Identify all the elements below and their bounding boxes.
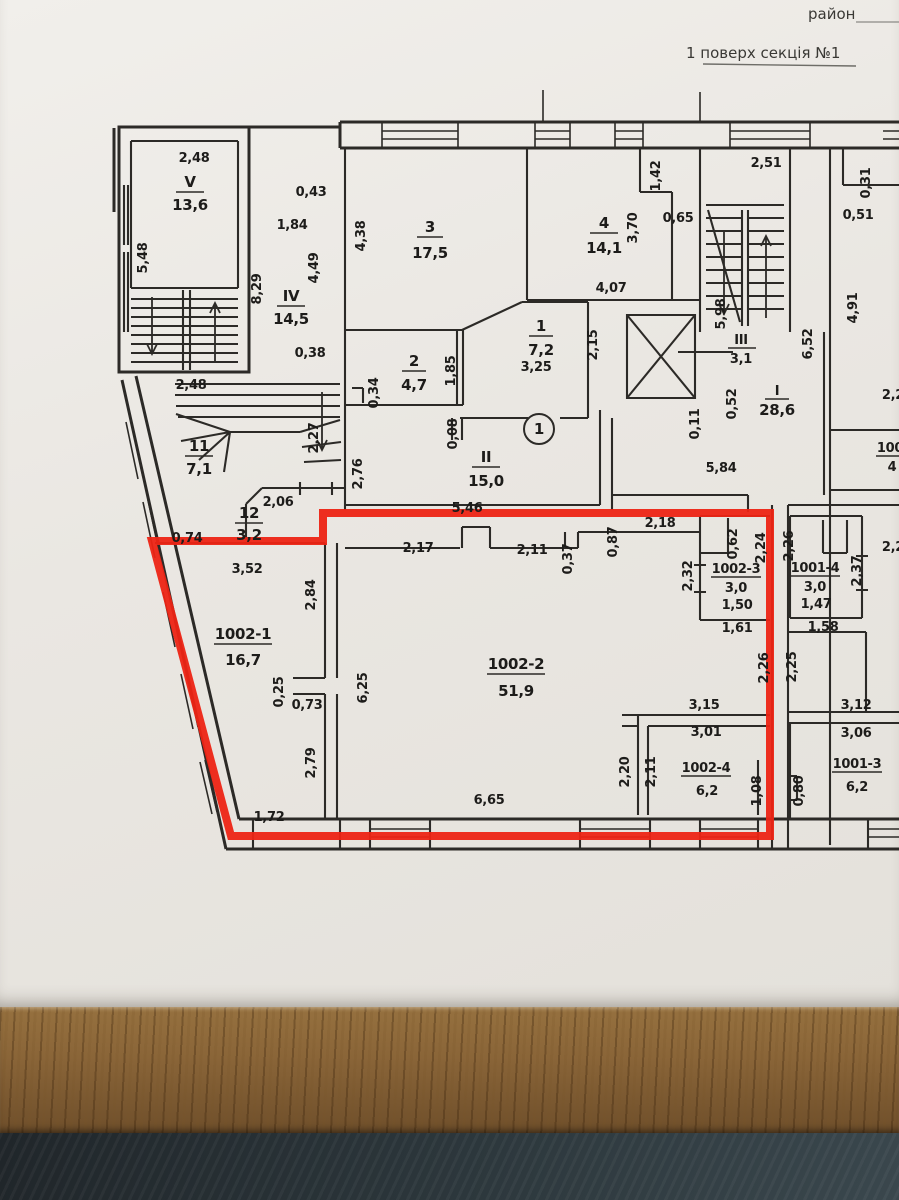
svg-text:3,70: 3,70 [626, 212, 641, 243]
room-label-12: 12 3,2 [235, 504, 263, 544]
svg-text:5,46: 5,46 [452, 501, 483, 516]
svg-text:0,65: 0,65 [663, 211, 694, 226]
svg-text:1,08: 1,08 [750, 775, 765, 806]
photo-of-floor-plan: { "header": { "district_label": "район",… [0, 0, 899, 1200]
svg-text:14,1: 14,1 [586, 239, 622, 257]
interior-walls [124, 141, 899, 849]
title-underline [703, 64, 856, 66]
svg-text:6,2: 6,2 [846, 780, 868, 795]
room-label-I: I 28,6 [759, 384, 795, 419]
svg-text:4,91: 4,91 [846, 292, 861, 323]
plan-title: 1 поверх секція №1 [686, 44, 840, 62]
svg-text:1001-4: 1001-4 [791, 561, 840, 576]
svg-text:0,51: 0,51 [843, 208, 874, 223]
svg-text:1,84: 1,84 [277, 218, 308, 233]
svg-text:0,43: 0,43 [296, 185, 327, 200]
svg-text:28,6: 28,6 [759, 401, 795, 419]
svg-text:3,01: 3,01 [691, 725, 722, 740]
svg-text:4,07: 4,07 [596, 281, 627, 296]
svg-text:0,11: 0,11 [688, 408, 703, 439]
room-label-4: 4 14,1 [586, 214, 622, 257]
svg-text:3,15: 3,15 [689, 698, 720, 713]
svg-text:III: III [734, 333, 748, 348]
svg-text:0,37: 0,37 [561, 543, 576, 574]
room-label-11: 11 7,1 [185, 437, 213, 478]
svg-text:3,0: 3,0 [804, 580, 826, 595]
svg-text:2,20: 2,20 [618, 756, 633, 787]
svg-text:1,72: 1,72 [254, 810, 285, 825]
svg-text:0,08: 0,08 [446, 418, 461, 449]
room-label-2: 2 4,7 [401, 352, 427, 394]
svg-text:4,49: 4,49 [307, 252, 322, 283]
svg-text:II: II [481, 448, 492, 466]
svg-text:2,24: 2,24 [754, 532, 769, 563]
svg-text:3: 3 [425, 218, 435, 236]
room-label-right-edge-clipped: 100 4 [876, 441, 899, 475]
svg-text:2,27: 2,27 [307, 422, 322, 453]
room-label-3: 3 17,5 [412, 218, 448, 262]
svg-text:2,26: 2,26 [757, 652, 772, 683]
svg-text:2,11: 2,11 [517, 543, 548, 558]
svg-text:5,48: 5,48 [136, 242, 151, 273]
svg-text:0,38: 0,38 [295, 346, 326, 361]
svg-text:2,48: 2,48 [176, 378, 207, 393]
svg-text:3,1: 3,1 [730, 352, 752, 367]
svg-text:5,84: 5,84 [706, 461, 737, 476]
svg-text:2,25: 2,25 [785, 651, 800, 682]
svg-text:2,2: 2,2 [882, 540, 899, 555]
svg-text:1,50: 1,50 [722, 598, 753, 613]
room-label-IV: IV 14,5 [273, 287, 309, 328]
svg-text:6,2: 6,2 [696, 784, 718, 799]
svg-text:V: V [184, 173, 196, 191]
svg-text:13,6: 13,6 [172, 196, 208, 214]
room-label-1002-1: 1002-1 16,7 [214, 625, 272, 669]
floor-plan-drawing: район 1 поверх секція №1 [0, 0, 899, 1200]
svg-text:2,37: 2,37 [850, 555, 865, 586]
svg-text:2,79: 2,79 [304, 747, 319, 778]
svg-text:16,7: 16,7 [225, 651, 261, 669]
svg-text:11: 11 [189, 437, 209, 455]
svg-text:4,7: 4,7 [401, 376, 427, 394]
svg-text:3,0: 3,0 [725, 581, 747, 596]
svg-text:1002-4: 1002-4 [682, 761, 731, 776]
svg-text:2,84: 2,84 [304, 579, 319, 610]
room-label-1002-4: 1002-4 6,2 [681, 761, 731, 799]
svg-text:7,2: 7,2 [528, 341, 554, 359]
svg-text:1,85: 1,85 [444, 355, 459, 386]
svg-text:2,76: 2,76 [351, 458, 366, 489]
entrance-mark: 1 [524, 414, 554, 444]
svg-text:2,06: 2,06 [263, 495, 294, 510]
svg-text:6,25: 6,25 [356, 672, 371, 703]
room-label-1001-3: 1001-3 6,2 [832, 757, 882, 795]
svg-text:8,29: 8,29 [250, 273, 265, 304]
svg-text:0,87: 0,87 [606, 526, 621, 557]
svg-text:I: I [775, 384, 780, 399]
svg-text:3,12: 3,12 [841, 698, 872, 713]
room-label-1001-4: 1001-4 3,0 1,47 [790, 561, 840, 612]
svg-text:0,80: 0,80 [792, 775, 807, 806]
svg-text:2,48: 2,48 [179, 151, 210, 166]
svg-text:2,51: 2,51 [751, 156, 782, 171]
svg-text:0,31: 0,31 [859, 167, 874, 198]
svg-text:3,06: 3,06 [841, 726, 872, 741]
svg-text:IV: IV [283, 287, 300, 305]
svg-text:0,34: 0,34 [367, 377, 382, 408]
svg-text:4,38: 4,38 [354, 220, 369, 251]
svg-text:1001-3: 1001-3 [833, 757, 882, 772]
svg-text:1002-2: 1002-2 [488, 655, 545, 673]
svg-text:2: 2 [409, 352, 419, 370]
svg-text:0,74: 0,74 [172, 531, 203, 546]
svg-text:12: 12 [239, 504, 259, 522]
room-label-1002-3: 1002-3 3,0 1,50 [711, 562, 761, 613]
svg-text:2,11: 2,11 [644, 756, 659, 787]
room-label-V: V 13,6 [172, 173, 208, 214]
svg-text:17,5: 17,5 [412, 244, 448, 262]
page-header: район 1 поверх секція №1 [686, 5, 899, 66]
svg-text:100: 100 [877, 441, 899, 456]
svg-text:4: 4 [599, 214, 609, 232]
svg-text:1,47: 1,47 [801, 597, 832, 612]
svg-text:2,32: 2,32 [681, 561, 696, 592]
svg-text:1: 1 [536, 317, 546, 335]
district-label: район [808, 5, 855, 23]
svg-text:0,62: 0,62 [726, 529, 741, 560]
svg-text:2,2: 2,2 [882, 388, 899, 403]
svg-text:6,52: 6,52 [801, 329, 816, 360]
svg-text:15,0: 15,0 [468, 472, 504, 490]
svg-text:3,25: 3,25 [521, 360, 552, 375]
svg-text:5,98: 5,98 [714, 298, 729, 329]
svg-text:51,9: 51,9 [498, 682, 534, 700]
svg-text:0,73: 0,73 [292, 698, 323, 713]
svg-text:4: 4 [888, 460, 897, 475]
room-label-1: 1 7,2 [528, 317, 554, 359]
svg-text:2,15: 2,15 [586, 329, 601, 360]
room-label-1002-2: 1002-2 51,9 [487, 655, 545, 700]
svg-text:0,25: 0,25 [272, 676, 287, 707]
svg-text:1,58: 1,58 [808, 620, 839, 635]
svg-text:3,52: 3,52 [232, 562, 263, 577]
svg-text:1,42: 1,42 [649, 161, 664, 192]
svg-text:2,26: 2,26 [782, 530, 797, 561]
svg-text:0,52: 0,52 [725, 389, 740, 420]
svg-text:3,2: 3,2 [236, 526, 262, 544]
svg-text:14,5: 14,5 [273, 310, 309, 328]
svg-text:2,17: 2,17 [403, 541, 434, 556]
svg-text:1,61: 1,61 [722, 621, 753, 636]
room-label-III: III 3,1 [728, 333, 756, 367]
svg-text:2,18: 2,18 [645, 516, 676, 531]
svg-text:7,1: 7,1 [186, 460, 212, 478]
svg-text:1002-1: 1002-1 [215, 625, 272, 643]
room-label-II: II 15,0 [468, 448, 504, 490]
svg-text:6,65: 6,65 [474, 793, 505, 808]
window-lines [126, 90, 899, 837]
entrance-number: 1 [534, 420, 544, 438]
